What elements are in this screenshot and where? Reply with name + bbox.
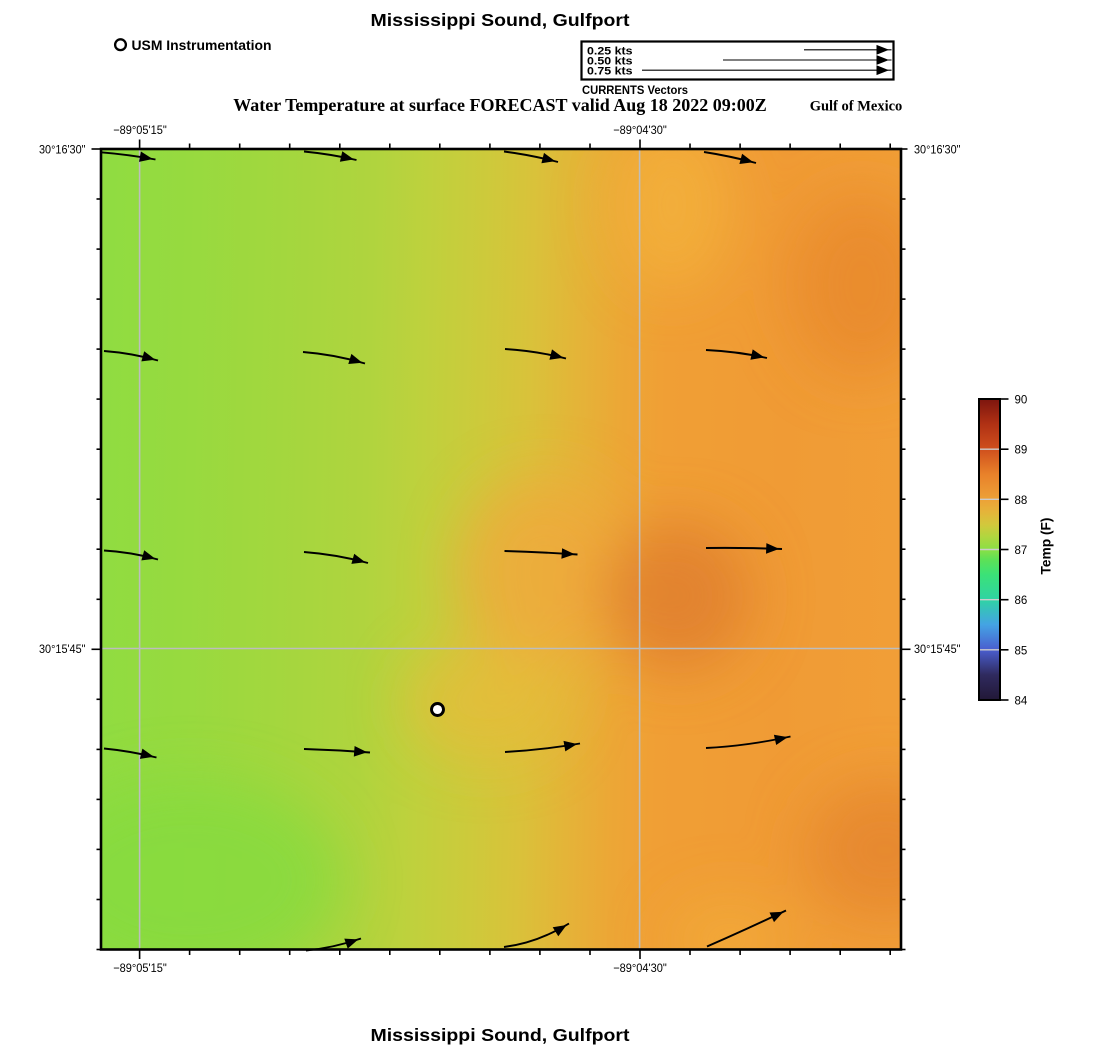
svg-text:88: 88: [1015, 495, 1028, 507]
svg-text:87: 87: [1015, 545, 1028, 557]
svg-text:86: 86: [1015, 595, 1028, 607]
svg-text:−89°05'15": −89°05'15": [113, 961, 167, 975]
svg-text:Water Temperature at surface F: Water Temperature at surface FORECAST va…: [233, 95, 767, 115]
svg-text:30°15'45": 30°15'45": [914, 642, 961, 656]
svg-text:30°15'45": 30°15'45": [39, 642, 86, 656]
svg-text:Mississippi Sound, Gulfport: Mississippi Sound, Gulfport: [371, 1025, 630, 1045]
svg-text:−89°05'15": −89°05'15": [113, 123, 167, 137]
svg-text:−89°04'30": −89°04'30": [613, 123, 667, 137]
svg-text:−89°04'30": −89°04'30": [613, 961, 667, 975]
svg-text:30°16'30": 30°16'30": [39, 143, 86, 157]
svg-text:0.75 kts: 0.75 kts: [587, 66, 633, 78]
svg-text:Mississippi Sound, Gulfport: Mississippi Sound, Gulfport: [371, 10, 630, 30]
svg-text:Temp (F): Temp (F): [1038, 518, 1054, 575]
svg-text:89: 89: [1015, 445, 1028, 457]
svg-text:Gulf of Mexico: Gulf of Mexico: [810, 99, 903, 115]
svg-text:USM Instrumentation: USM Instrumentation: [132, 38, 272, 53]
svg-text:85: 85: [1015, 645, 1028, 657]
svg-text:84: 84: [1015, 696, 1028, 708]
svg-text:30°16'30": 30°16'30": [914, 143, 961, 157]
svg-text:90: 90: [1015, 395, 1028, 407]
